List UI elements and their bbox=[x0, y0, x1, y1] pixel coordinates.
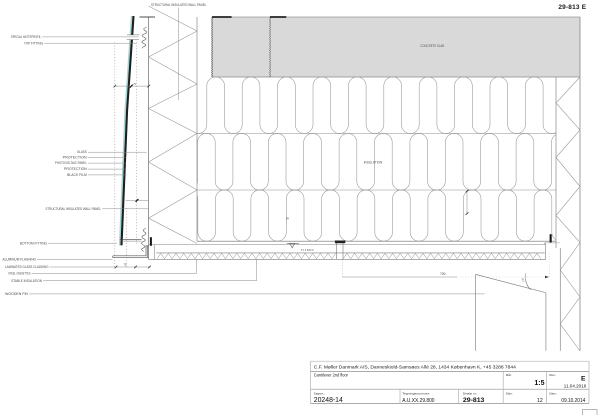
svg-text:C.F. Møller Danmark A/S, Danne: C.F. Møller Danmark A/S, Danneskiold-Sam… bbox=[314, 365, 517, 370]
svg-text:E: E bbox=[581, 375, 586, 382]
svg-text:Side:: Side: bbox=[506, 392, 513, 396]
svg-text:700: 700 bbox=[440, 272, 446, 276]
svg-text:20248-14: 20248-14 bbox=[314, 395, 343, 404]
svg-text:SPECIAL HATTEPROFIL: SPECIAL HATTEPROFIL bbox=[11, 35, 41, 39]
svg-text:ALUMINUM FLASHING: ALUMINUM FLASHING bbox=[3, 258, 37, 262]
svg-text:Rev.:: Rev.: bbox=[549, 373, 556, 377]
svg-text:Tegningsnummer:: Tegningsnummer: bbox=[402, 392, 430, 396]
svg-text:A.U.XX.29.800: A.U.XX.29.800 bbox=[402, 398, 434, 404]
svg-text:STRUCTURAL INSULATED WALL PANE: STRUCTURAL INSULATED WALL PANEL bbox=[151, 3, 206, 7]
svg-text:Detalje nr.:: Detalje nr.: bbox=[463, 392, 478, 396]
svg-text:INSULATION: INSULATION bbox=[364, 160, 383, 164]
svg-text:Cantilever 2nd floor: Cantilever 2nd floor bbox=[314, 373, 349, 378]
svg-text:Dato:: Dato: bbox=[549, 392, 556, 396]
svg-text:BLACK FILM: BLACK FILM bbox=[67, 173, 87, 177]
svg-text:PROTECTION: PROTECTION bbox=[63, 155, 88, 159]
svg-text:CONCRETE SLAB: CONCRETE SLAB bbox=[420, 44, 444, 48]
svg-text:PROTECTION: PROTECTION bbox=[64, 167, 87, 171]
svg-text:LAMINATED GLASS CLADDING: LAMINATED GLASS CLADDING bbox=[5, 265, 49, 269]
svg-text:GLASS: GLASS bbox=[77, 150, 88, 154]
svg-text:29-813: 29-813 bbox=[463, 397, 485, 404]
svg-text:WOODEN FIN: WOODEN FIN bbox=[5, 292, 29, 296]
svg-text:TOP FITTING: TOP FITTING bbox=[24, 41, 43, 45]
svg-text:09.10.2014: 09.10.2014 bbox=[561, 398, 585, 404]
svg-text:STRUCTURAL INSULATED WALL PANE: STRUCTURAL INSULATED WALL PANEL bbox=[46, 207, 102, 211]
svg-text:Mål:: Mål: bbox=[506, 373, 512, 377]
svg-text:s: s bbox=[284, 217, 289, 219]
svg-text:STABLE INSULATION: STABLE INSULATION bbox=[11, 279, 42, 283]
svg-text:STEEL CASSETTES: STEEL CASSETTES bbox=[8, 272, 31, 276]
svg-text:KT. 9.900 M: KT. 9.900 M bbox=[301, 248, 314, 252]
svg-text:PHOTOVOLTAIC PANEL: PHOTOVOLTAIC PANEL bbox=[55, 161, 87, 165]
svg-text:29-813 E: 29-813 E bbox=[558, 4, 586, 11]
svg-text:1:5: 1:5 bbox=[534, 380, 544, 387]
svg-text:BOTTOM FITTING: BOTTOM FITTING bbox=[20, 241, 47, 245]
svg-text:12: 12 bbox=[537, 398, 543, 404]
svg-text:11.04.2016: 11.04.2016 bbox=[564, 384, 587, 390]
